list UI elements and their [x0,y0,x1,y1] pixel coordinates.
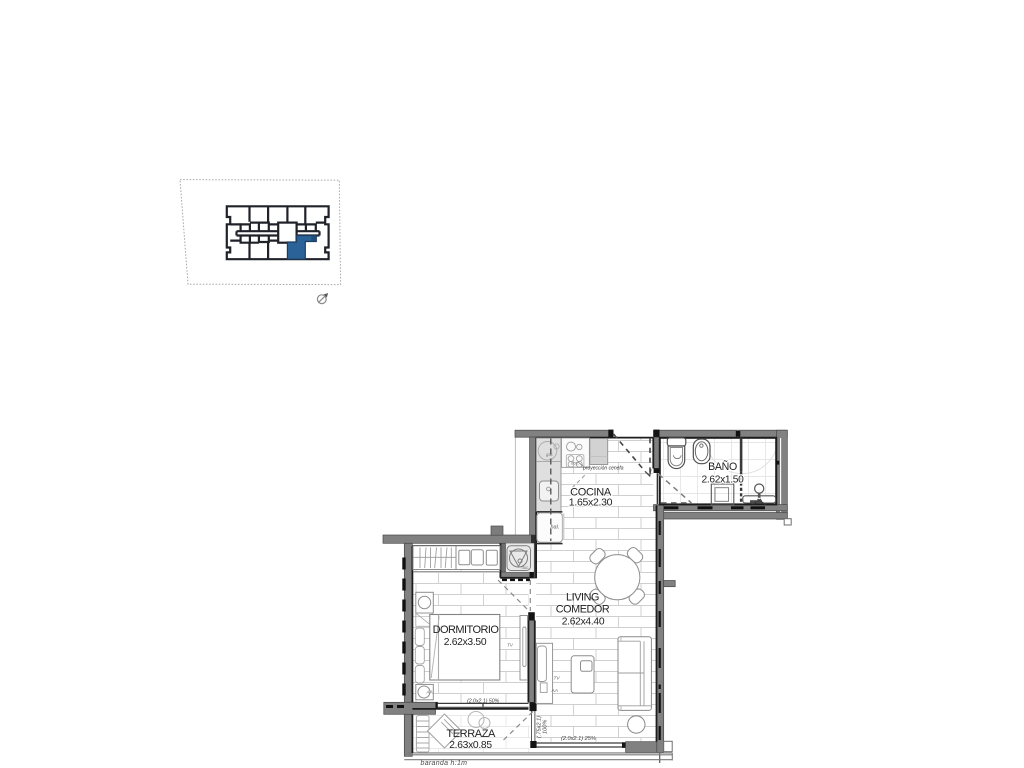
svg-text:100%: 100% [543,720,549,734]
svg-text:DORMITORIO: DORMITORIO [433,624,500,636]
svg-text:TERRAZA: TERRAZA [446,728,496,740]
svg-text:duc.: duc. [522,565,530,570]
svg-text:hal.: hal. [551,525,560,531]
svg-text:LIVING: LIVING [566,592,599,604]
svg-text:2.62x3.50: 2.62x3.50 [444,637,487,648]
svg-text:2.62x4.40: 2.62x4.40 [562,616,605,627]
svg-text:2.63x0.85: 2.63x0.85 [449,740,492,751]
svg-text:AA: AA [551,688,558,694]
svg-text:TV: TV [507,643,514,648]
svg-text:proyección cenefa: proyección cenefa [582,466,624,472]
svg-text:2.62x1.50: 2.62x1.50 [701,474,744,485]
svg-text:1.65x2.30: 1.65x2.30 [569,497,613,509]
svg-text:(2.0x2.1) 25%: (2.0x2.1) 25% [561,736,596,742]
svg-text:COMEDOR: COMEDOR [556,604,610,616]
svg-text:baranda h:1m: baranda h:1m [421,760,468,767]
svg-text:doc.: doc. [571,461,579,466]
svg-text:BAÑO: BAÑO [708,460,737,473]
svg-text:(2.0x2.1) 50%: (2.0x2.1) 50% [467,699,500,705]
svg-text:AA: AA [426,690,433,695]
svg-text:gar.: gar. [546,452,553,457]
svg-text:TV: TV [554,676,561,682]
